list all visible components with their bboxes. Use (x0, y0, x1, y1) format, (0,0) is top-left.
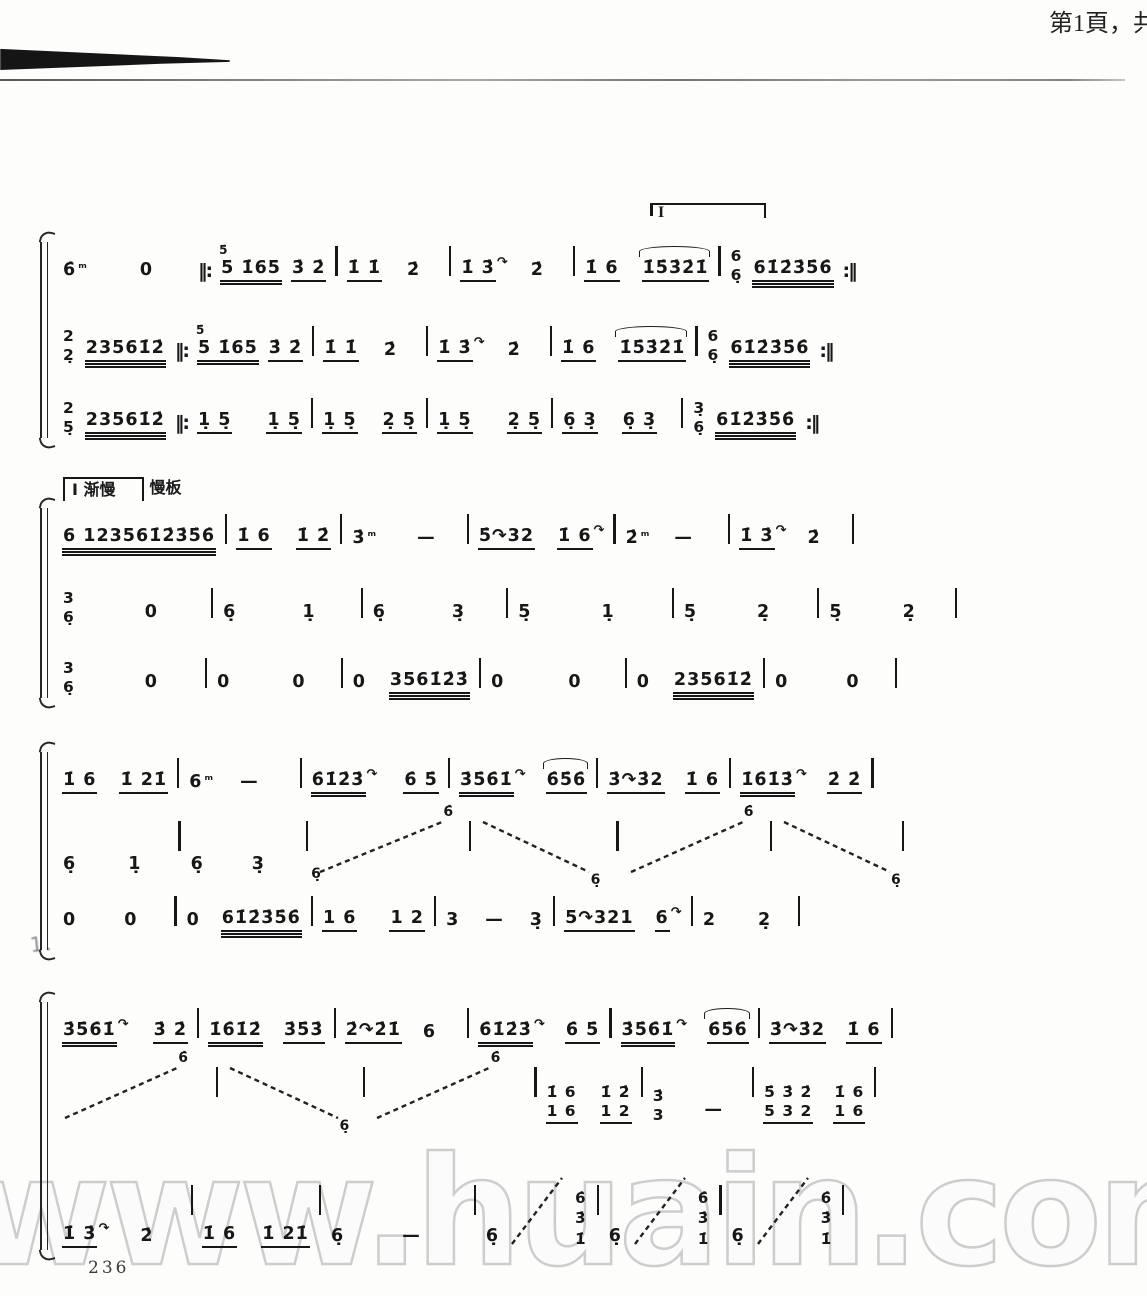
barline (895, 658, 897, 688)
stack-note: 3̇ (574, 1210, 587, 1227)
stack-note: 5̣ (62, 419, 76, 436)
notation-row: 00061̇2̇3̇5̇6̇1 61 23—3̣5↷3216↷22̣ (62, 888, 800, 934)
note-token: 6̣ (731, 1227, 746, 1250)
note-text: 1̣ 5̣ (322, 411, 357, 434)
note-token: 1̇ 3̇↷ (739, 524, 786, 552)
note-text: 2 (702, 911, 717, 932)
barline (752, 1067, 754, 1097)
note-token: — (401, 1227, 422, 1250)
note-stack: 25̣ (62, 400, 76, 436)
slide-up-mark: ₘ (78, 257, 87, 272)
note-stack: 66̣ (730, 248, 744, 284)
slide-up-mark: ↷ (98, 1221, 109, 1236)
note-spacer (86, 877, 118, 878)
note-spacer (430, 283, 440, 284)
note-token: 3561̇2̇3̇ (389, 671, 470, 696)
barline (225, 514, 227, 544)
scan-artifact-line (0, 79, 1125, 81)
gliss-end-note: 6̣ (891, 872, 901, 888)
note-spacer (469, 933, 475, 934)
slide-up-mark: ₘ (641, 525, 650, 540)
note-spacer (780, 625, 808, 626)
note-text: — (703, 1101, 724, 1122)
note-token: 1̣ (127, 855, 142, 878)
note-spacer (391, 283, 397, 284)
stack-note: 3 (62, 660, 76, 677)
notation-row: 6̇ₘ0‖:5 1̇655̇3̇ 2̇1̇ 1̇2̇1̇ 3̇↷2̇1̇ 61̇… (62, 238, 856, 284)
note-token: 3̣ (451, 603, 466, 626)
barline (798, 896, 800, 926)
note-spacer (726, 933, 748, 934)
note-stack: 22̣ (62, 328, 76, 364)
note-text: 1̣ (127, 855, 142, 876)
barline (426, 398, 428, 428)
note-token: 3̇↷3̇2 (607, 771, 664, 796)
notation-row: 6̇6̣6̇1̇ 61 61̇ 2̇1 23̇3—5̇ 3̇ 2̇5 3 21̇… (62, 1040, 876, 1124)
note-text: 1̇5̇3̇2̇1̇ (618, 339, 686, 362)
note-token: 61̇2̇3̇5̇6̇ (221, 909, 302, 934)
barline (479, 658, 481, 688)
note-text: 2̇ (806, 529, 821, 550)
stack-note: 6 (730, 248, 744, 265)
barline (551, 398, 553, 428)
stack-note: 5 3 2 (763, 1103, 813, 1124)
note-token: 1̣ (600, 603, 615, 626)
repeat-sign: ‖: (198, 262, 211, 284)
stack-note: 6 (707, 328, 721, 345)
repeat-sign: :‖ (843, 262, 856, 284)
note-token: 61̇2̇3̇5̇6̇ (715, 411, 796, 436)
volta-number-label: I (658, 204, 664, 222)
note-text: 6̣ (330, 1227, 345, 1248)
note-text: 1̇ 6 (685, 771, 720, 794)
note-spacer (605, 363, 609, 364)
note-spacer (316, 695, 332, 696)
notation-row: 36̣00003561̇2̇3̇00023561̇2̇00 (62, 650, 897, 696)
note-text: 0 (216, 673, 231, 694)
note-text: 6̣ (731, 1227, 746, 1248)
note-spacer (501, 1123, 525, 1124)
slide-up-mark: ↷ (515, 767, 526, 782)
stack-note: 1 2 (600, 1103, 632, 1124)
note-token: 6̇5̇6̇ (546, 771, 588, 796)
barline (695, 326, 697, 356)
barline (597, 1185, 599, 1215)
barline (550, 326, 552, 356)
system-brace (40, 1002, 48, 1250)
stack-note: 6̣ (62, 679, 76, 696)
note-spacer (703, 551, 719, 552)
note-token: 1̇ 3̇↷ (460, 256, 507, 284)
note-token: 2̣ (902, 603, 917, 626)
note-spacer (666, 435, 672, 436)
barline (448, 758, 450, 788)
note-token: 1̇ 21̇ (261, 1225, 310, 1250)
note-spacer (587, 1123, 591, 1124)
tempo-bracket-label: I 渐慢 (63, 477, 144, 501)
note-text: 2̇ (139, 1227, 154, 1248)
note-token: 23561̇2̇ (85, 339, 166, 364)
note-token: 1̣ (301, 603, 316, 626)
barline (553, 896, 555, 926)
note-text: 1̇ 6 (561, 339, 596, 362)
note-text: 6̣ (190, 855, 205, 876)
notation-row: 1̇ 61̇ 21̇6ₘ—6̇1̇2̇3̇↷6̇ 5̇3̇5̇6̇1̇↷6̇5̇… (62, 750, 874, 796)
grace-note: 5̇ (196, 324, 204, 336)
glissando-up-mark: 6̇ (628, 816, 746, 878)
barline (216, 1067, 218, 1097)
note-spacer (163, 283, 189, 284)
note-text: 61̇2̇3̇5̇6̇ (221, 909, 302, 932)
note-spacer (385, 551, 407, 552)
barline (874, 1067, 876, 1097)
note-spacer (658, 551, 664, 552)
note-stack: 1̇ 61 6 (833, 1084, 865, 1124)
note-spacer (210, 933, 212, 934)
note-text: 6̇ (62, 261, 77, 282)
barline (596, 758, 598, 788)
note-token: 2̇ (530, 261, 545, 284)
note-token: 2̇ (406, 261, 421, 284)
note-token: 23561̇2̇ (85, 411, 166, 436)
note-text: 0 (123, 911, 138, 932)
barline (770, 821, 772, 851)
stack-note: 1̇ (574, 1231, 587, 1248)
note-token: 5 1̇655̇ (197, 339, 259, 364)
note-token: 6̇1̇2̇3̇↷ (311, 768, 378, 796)
system-brace (40, 752, 48, 950)
note-token: 1̣ 5̣ (266, 411, 301, 436)
note-spacer (350, 1123, 354, 1124)
barline (197, 1008, 199, 1038)
note-token: 6̣ 3̣ (622, 411, 657, 436)
barline (363, 1067, 365, 1097)
note-text: 2̇ (507, 341, 522, 362)
slide-up-mark: ↷ (776, 523, 787, 538)
barline (625, 658, 627, 688)
note-token: 3 (445, 911, 460, 934)
note-spacer (531, 363, 541, 364)
note-text: 2̇ (383, 341, 398, 362)
stack-note: 3̇ (652, 1088, 666, 1105)
note-spacer (514, 933, 520, 934)
barline (728, 514, 730, 544)
note-token: 1̇5̇3̇2̇1̇ (618, 339, 686, 364)
note-spacer (366, 933, 380, 934)
note-spacer (354, 1249, 392, 1250)
barline (763, 658, 765, 688)
note-token: 6̣ (222, 603, 237, 626)
note-spacer (376, 695, 380, 696)
barline (340, 514, 342, 544)
barline (312, 326, 314, 356)
note-stack: 3̇3 (652, 1088, 666, 1124)
note-token: 6̣ (190, 855, 205, 878)
note-token: 5̣ (683, 603, 698, 626)
note-spacer (241, 435, 257, 436)
barline (573, 246, 575, 276)
note-token: 1̇ 3̇↷ (62, 1222, 109, 1250)
stack-note: 2 (62, 400, 76, 417)
note-token: 0 (845, 673, 860, 696)
barline (691, 896, 693, 926)
note-text: 6 (655, 909, 670, 932)
note-text: — (673, 529, 694, 550)
note-text: 0 (144, 603, 159, 624)
barline (335, 246, 337, 276)
note-text: — (484, 911, 505, 932)
note-text: 6̇1̇2̇3̇ (311, 771, 366, 794)
barline (319, 1185, 321, 1215)
barline (842, 1185, 844, 1215)
note-spacer (644, 933, 646, 934)
note-token: 3̇ 2̇ (291, 259, 326, 284)
note-text: 6̣ (485, 1227, 500, 1248)
note-token: 1̇ 6 (685, 771, 720, 796)
note-spacer (592, 695, 616, 696)
note-token: 6̣ (608, 1227, 623, 1250)
note-token: 0 (62, 911, 77, 934)
note-text: 1̇ 3̇ (460, 259, 495, 282)
stack-note: 3 (62, 590, 76, 607)
barline (718, 246, 720, 276)
chord-stack: 6̇3̇1̇ (697, 1190, 710, 1250)
note-stack: 5̇ 3̇ 2̇5 3 2 (763, 1084, 813, 1124)
note-token: 0 (774, 673, 789, 696)
note-token: 6↷ (655, 906, 682, 934)
note-token: 2̇ₘ (625, 526, 650, 552)
note-token: 1̇ 1̇ (347, 259, 382, 284)
page-header-text: 第1頁，共 (1049, 3, 1147, 38)
note-token: 2̇ 2̇ (827, 771, 862, 796)
note-spacer (164, 1249, 182, 1250)
barline (426, 326, 428, 356)
note-text: 0 (774, 673, 789, 694)
note-token: 6̣ (372, 603, 387, 626)
glissando-up-mark (755, 1172, 811, 1250)
note-spacer (514, 695, 558, 696)
note-text: 0 (636, 673, 651, 694)
note-token: 0 (144, 673, 159, 696)
barline (729, 758, 731, 788)
note-spacer (853, 625, 893, 626)
tempo-marking: I 渐慢 慢板 (63, 477, 182, 501)
note-text: 5↷321 (564, 909, 634, 932)
barline (306, 821, 308, 851)
note-token: 6ₘ (188, 770, 213, 796)
note-spacer (482, 435, 498, 436)
note-spacer (517, 283, 521, 284)
note-spacer (118, 1249, 130, 1250)
note-text: 0 (567, 673, 582, 694)
gliss-start-note: 6̣ (311, 866, 321, 882)
note-spacer (601, 877, 607, 878)
note-text: 1̇ 6 (202, 1225, 237, 1248)
note-spacer (494, 363, 498, 364)
note-token: 1̇ 21̇ (119, 771, 168, 796)
note-spacer (625, 625, 663, 626)
note-text: 1̣ 5̣ (437, 411, 472, 434)
note-text: 3 (445, 911, 460, 932)
note-text: 1̣ 5̣ (197, 411, 232, 434)
note-spacer (407, 363, 417, 364)
glissando-down-mark: 6̣ (480, 816, 592, 878)
slide-up-mark: ↷ (671, 905, 682, 920)
note-spacer (798, 695, 836, 696)
barline (681, 398, 683, 428)
glissando-up-mark: 6̣6̇ (317, 816, 445, 878)
repeat-sign: ‖: (175, 342, 188, 364)
note-text: 2̇ (530, 261, 545, 282)
stack-note: 2̣ (62, 347, 76, 364)
note-spacer (85, 625, 135, 626)
note-stack: 36̣ (62, 590, 76, 626)
glissando-down-mark: 6̣ (227, 1062, 341, 1124)
note-text: 6̣ 3̣ (622, 411, 657, 434)
note-stack: 36̣ (62, 660, 76, 696)
note-text: 6̇5̇6̇ (546, 771, 588, 794)
note-token: 6 123561̇2̇3̇5̇6̇ (62, 527, 216, 552)
notation-row: 25̣23561̇2̇‖:1̣ 5̣1̣ 5̣1̣ 5̣2̣ 5̣1̣ 5̣2̣… (62, 390, 818, 436)
barline (211, 588, 213, 618)
barline (758, 1008, 760, 1038)
note-token: 2̇ (507, 341, 522, 364)
note-token: 6̇ 5̇ (403, 771, 438, 796)
note-text: 3̣ (451, 603, 466, 624)
note-text: 5̇↷32 (478, 527, 535, 550)
note-token: 1 2 (389, 909, 424, 934)
repeat-sign: ‖: (175, 414, 188, 436)
note-token: 3̣ (529, 911, 544, 934)
note-spacer (326, 625, 352, 626)
note-token: 6̣ (485, 1227, 500, 1250)
note-text: 5 1̇65 (197, 339, 259, 362)
barline (334, 1008, 336, 1038)
note-spacer (85, 695, 135, 696)
note-spacer (214, 877, 242, 878)
note-token: 2̣ (757, 911, 772, 934)
barline (449, 246, 451, 276)
barline (174, 896, 176, 926)
note-token: 5̣ (517, 603, 532, 626)
note-text: 1̇ 6 (557, 527, 592, 550)
gliss-end-note: 6̇ (178, 1050, 188, 1066)
note-text: 1̇ 21̇ (119, 771, 168, 794)
note-spacer (755, 877, 761, 878)
note-text: 1̇ 1̇ (323, 339, 358, 362)
stack-note: 1̇ (697, 1231, 710, 1248)
stack-note: 6̇ (820, 1190, 833, 1207)
note-text: 5̣ (828, 603, 843, 624)
notation-row: 6̣1̣6̣3̣6̣6̇6̣6̇6̣ (62, 794, 904, 878)
note-token: 1̣ 5̣ (197, 411, 232, 436)
note-spacer (431, 1249, 465, 1250)
note-text: 2̇ (625, 529, 640, 550)
note-text: 2̣ 5̣ (507, 411, 542, 434)
first-ending-bracket: I (650, 203, 766, 218)
note-spacer (96, 283, 130, 284)
note-token: 2̣ 5̣ (382, 411, 417, 436)
note-spacer (446, 551, 458, 552)
note-token: 2̇ (139, 1227, 154, 1250)
note-spacer (281, 551, 287, 552)
note-token: 6̣ 3̣ (562, 411, 597, 436)
slide-up-mark: ₘ (204, 769, 213, 784)
barline (434, 896, 436, 926)
note-token: 1̇ 6 (561, 339, 596, 364)
gliss-end-note: 6̣ (339, 1118, 349, 1134)
note-text: 6̣ (62, 855, 77, 876)
note-text: 5 1̇65 (220, 259, 282, 282)
note-spacer (246, 625, 292, 626)
note-spacer (86, 933, 114, 934)
note-text: 0 (139, 261, 154, 282)
note-token: 1 6 (322, 909, 357, 934)
barline (616, 821, 618, 851)
note-spacer (660, 695, 664, 696)
note-spacer (147, 933, 165, 934)
stack-note: 6̣ (692, 419, 706, 436)
note-token: 1̇ 6 (584, 259, 619, 284)
note-token: 1̇ 6↷ (557, 524, 604, 552)
slide-up-mark: ↷ (474, 335, 485, 350)
scan-artifact-streak (0, 47, 230, 71)
note-stack: 1̇ 61 6 (546, 1084, 578, 1124)
note-text: 6 123561̇2̇3̇5̇6̇ (62, 527, 216, 550)
barline (311, 398, 313, 428)
notation-row: 36̣06̣1̣6̣3̣5̣1̣5̣2̣5̣2̣ (62, 580, 957, 626)
stack-note: 3 (652, 1107, 666, 1124)
note-text: 1̇ 3̇ (62, 1225, 97, 1248)
barline (891, 1008, 893, 1038)
note-text: 0 (186, 911, 201, 932)
barline (506, 588, 508, 618)
note-text: 23561̇2̇ (673, 671, 754, 694)
slide-up-mark: ↷ (367, 767, 378, 782)
note-token: 0 (636, 673, 651, 696)
note-text: 1 6 (322, 909, 357, 932)
note-text: 1̣ (301, 603, 316, 624)
barline (852, 514, 854, 544)
note-spacer (554, 283, 564, 284)
note-token: 0 (291, 673, 306, 696)
note-text: 1̇ 1̇ (347, 259, 382, 282)
barline (474, 1185, 476, 1215)
note-token: — (416, 529, 437, 552)
note-token: 1̇ 2̇ (296, 527, 331, 552)
note-text: 3̣ (251, 855, 266, 876)
note-text: — (416, 529, 437, 550)
barline (205, 658, 207, 688)
note-text: 2̇ (406, 261, 421, 282)
note-text: — (401, 1227, 422, 1248)
gliss-end-note: 6̇ (744, 804, 754, 820)
note-token: 2̣ (756, 603, 771, 626)
slide-up-mark: ↷ (796, 767, 807, 782)
note-text: 1̇ 2̇ (296, 527, 331, 550)
note-spacer (822, 1123, 824, 1124)
note-spacer (607, 435, 613, 436)
note-text: 61̇2̇3̇5̇6̇ (715, 411, 796, 434)
stack-note: 1̇ 6 (546, 1084, 578, 1101)
note-token: 5 1̇655̇ (220, 259, 282, 284)
slide-up-mark: ↷ (676, 1017, 687, 1032)
barline (177, 758, 179, 788)
note-token: 0 (490, 673, 505, 696)
note-text: 3̇↷3̇2 (607, 771, 664, 794)
note-token: 6̣ (62, 855, 77, 878)
note-token: — (239, 773, 260, 796)
